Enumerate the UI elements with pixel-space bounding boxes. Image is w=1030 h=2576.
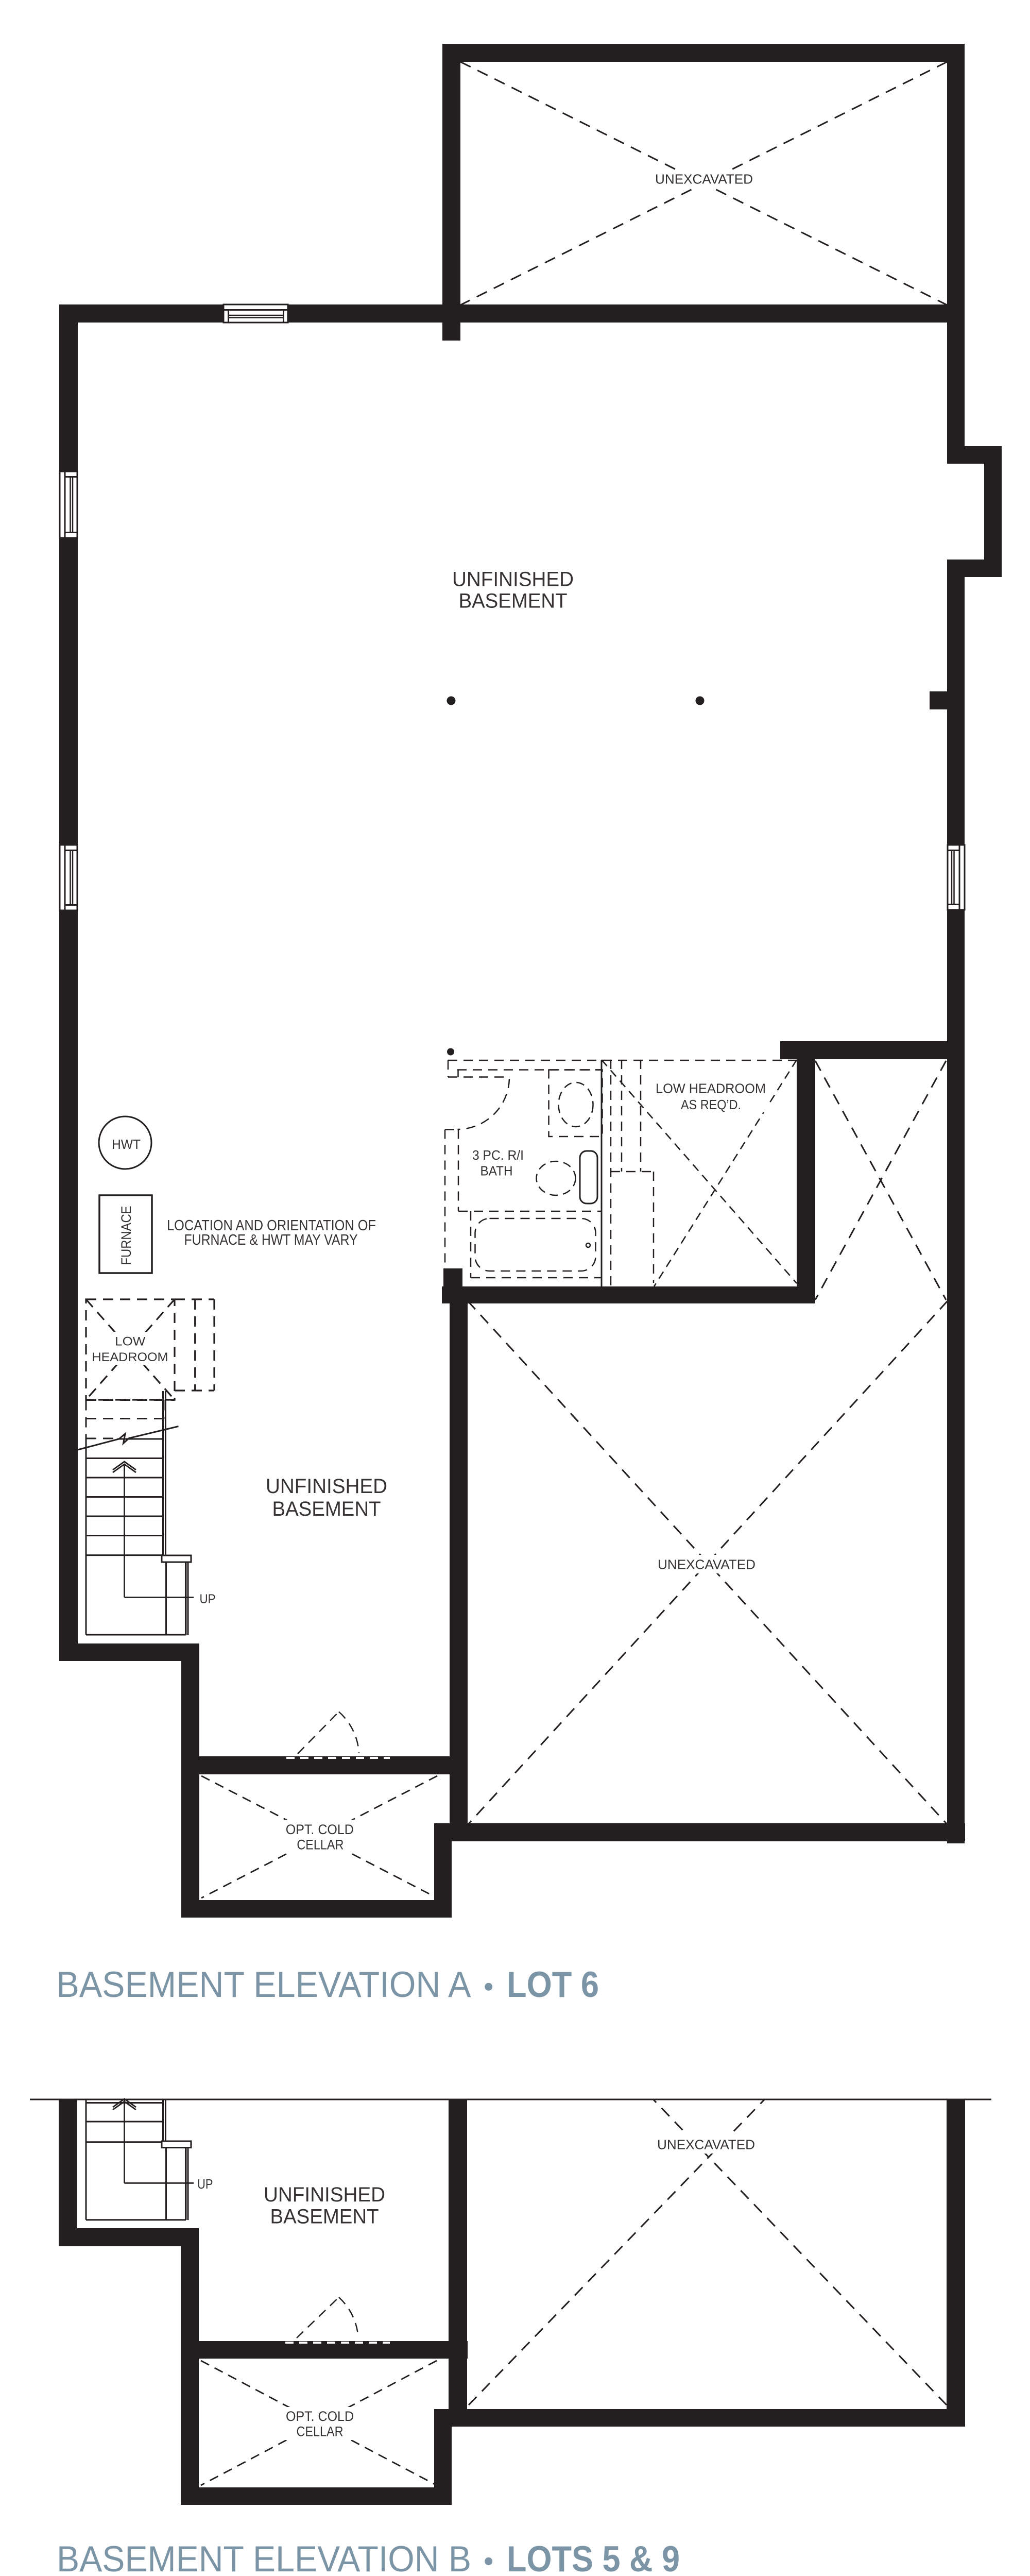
svg-text:CELLAR: CELLAR	[297, 1837, 344, 1852]
svg-text:UNEXCAVATED: UNEXCAVATED	[655, 172, 753, 187]
svg-text:OPT. COLD: OPT. COLD	[286, 1822, 354, 1837]
svg-text:LOT 6: LOT 6	[507, 1964, 599, 2005]
svg-text:AS REQ’D.: AS REQ’D.	[681, 1097, 741, 1112]
svg-text:CELLAR: CELLAR	[297, 2424, 344, 2439]
svg-text:HWT: HWT	[112, 1138, 141, 1152]
svg-text:UNEXCAVATED: UNEXCAVATED	[658, 1557, 756, 1572]
svg-text:BASEMENT ELEVATION B: BASEMENT ELEVATION B	[57, 2538, 471, 2576]
svg-text:HEADROOM: HEADROOM	[92, 1350, 168, 1364]
svg-text:FURNACE: FURNACE	[118, 1206, 134, 1265]
svg-text:BASEMENT: BASEMENT	[272, 1498, 381, 1520]
svg-text:FURNACE & HWT MAY VARY: FURNACE & HWT MAY VARY	[184, 1232, 358, 1248]
svg-text:LOW HEADROOM: LOW HEADROOM	[656, 1081, 766, 1096]
svg-text:LOW: LOW	[115, 1334, 146, 1348]
svg-text:BASEMENT ELEVATION A: BASEMENT ELEVATION A	[57, 1964, 471, 2005]
svg-text:UNEXCAVATED: UNEXCAVATED	[657, 2137, 755, 2153]
svg-text:UP: UP	[200, 1592, 216, 1606]
svg-text:UNFINISHED: UNFINISHED	[452, 568, 574, 591]
svg-text:LOTS 5 & 9: LOTS 5 & 9	[507, 2538, 680, 2576]
svg-text:OPT. COLD: OPT. COLD	[286, 2409, 354, 2424]
svg-text:UP: UP	[197, 2176, 213, 2192]
svg-text:BATH: BATH	[480, 1163, 513, 1179]
svg-text:UNFINISHED: UNFINISHED	[264, 2183, 385, 2206]
svg-text:BASEMENT: BASEMENT	[459, 590, 568, 613]
svg-text:3 PC. R/I: 3 PC. R/I	[472, 1147, 524, 1163]
svg-text:UNFINISHED: UNFINISHED	[266, 1475, 387, 1498]
svg-text:BASEMENT: BASEMENT	[270, 2206, 379, 2228]
